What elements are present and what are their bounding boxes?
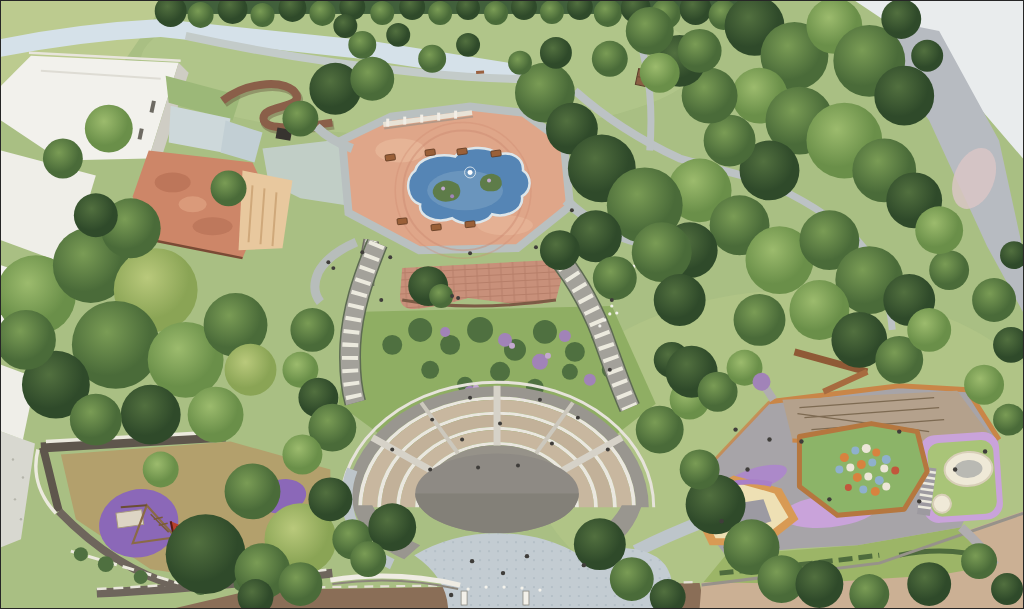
- play-sphere: [862, 444, 871, 453]
- person: [470, 559, 474, 563]
- person: [576, 416, 580, 420]
- person: [326, 260, 330, 264]
- person: [428, 467, 432, 471]
- person: [379, 298, 383, 302]
- play-sphere: [882, 455, 891, 464]
- play-sphere: [891, 466, 899, 474]
- play-sphere: [853, 473, 862, 482]
- person: [430, 418, 434, 422]
- play-sphere: [868, 458, 876, 466]
- play-sphere: [864, 472, 872, 480]
- person: [468, 251, 472, 255]
- play-sphere: [851, 447, 859, 455]
- play-sphere: [875, 476, 884, 485]
- play-sphere: [840, 453, 849, 462]
- person: [450, 294, 454, 298]
- person: [733, 427, 737, 431]
- play-sphere: [835, 465, 843, 473]
- person: [534, 245, 538, 249]
- person: [460, 438, 464, 442]
- person: [827, 497, 831, 501]
- entrance-pillar: [461, 591, 467, 605]
- person: [983, 449, 987, 453]
- person: [610, 298, 614, 302]
- park-aerial-render: [0, 0, 1024, 609]
- person: [897, 429, 901, 433]
- person: [456, 296, 460, 300]
- person: [468, 396, 472, 400]
- sand-pit: [932, 494, 951, 513]
- person: [606, 448, 610, 452]
- flowering-shrub: [753, 373, 771, 391]
- person: [498, 422, 502, 426]
- person: [719, 519, 723, 523]
- person: [331, 266, 335, 270]
- play-sphere: [846, 463, 854, 471]
- person: [501, 571, 505, 575]
- person: [476, 465, 480, 469]
- play-sphere: [882, 482, 890, 490]
- person: [608, 368, 612, 372]
- tree: [429, 284, 453, 308]
- person: [360, 250, 364, 254]
- play-sphere: [880, 464, 888, 472]
- person: [449, 593, 453, 597]
- play-sphere: [857, 460, 866, 469]
- person: [582, 563, 586, 567]
- pond: [408, 148, 529, 223]
- play-sphere: [859, 485, 867, 493]
- person: [953, 467, 957, 471]
- pond-island: [480, 174, 502, 192]
- person: [525, 554, 529, 558]
- person: [516, 463, 520, 467]
- park-scene: [1, 1, 1023, 608]
- ball-mound: [799, 424, 927, 516]
- person: [388, 255, 392, 259]
- person: [799, 439, 803, 443]
- play-sphere: [872, 449, 880, 457]
- person: [390, 448, 394, 452]
- fountain: [468, 170, 473, 175]
- person: [745, 467, 749, 471]
- entrance-pillar: [523, 591, 529, 605]
- play-sphere: [871, 487, 880, 496]
- play-sphere: [845, 484, 852, 491]
- person: [550, 442, 554, 446]
- person: [538, 398, 542, 402]
- person: [570, 208, 574, 212]
- person: [917, 499, 921, 503]
- person: [767, 437, 771, 441]
